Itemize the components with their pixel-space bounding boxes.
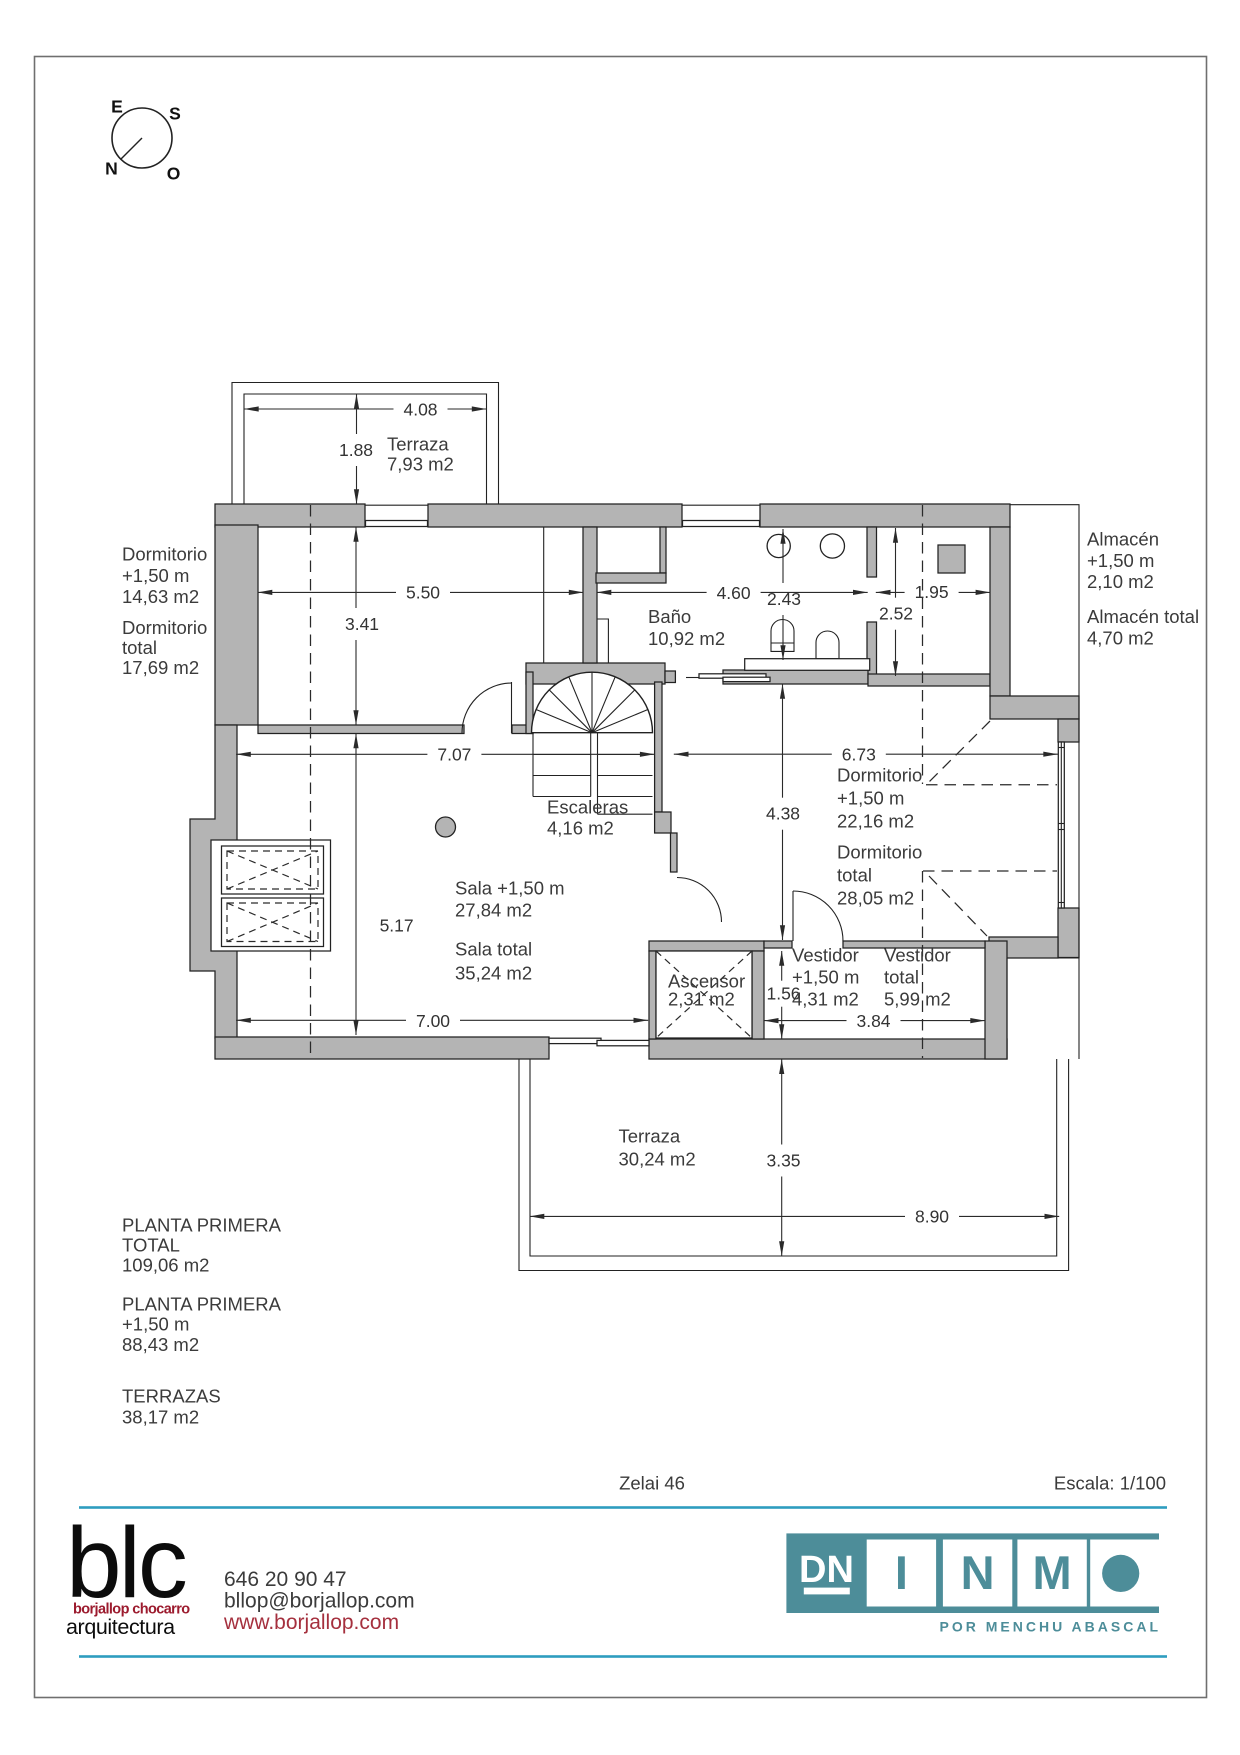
svg-text:bllop@borjallop.com: bllop@borjallop.com: [224, 1590, 415, 1613]
svg-text:1.88: 1.88: [339, 440, 373, 460]
svg-text:4,31 m2: 4,31 m2: [792, 989, 859, 1010]
svg-text:14,63 m2: 14,63 m2: [122, 586, 199, 607]
svg-text:Zelai 46: Zelai 46: [619, 1473, 685, 1494]
svg-text:5,99 m2: 5,99 m2: [884, 989, 951, 1010]
svg-text:4.38: 4.38: [766, 804, 800, 824]
svg-text:Terraza: Terraza: [619, 1126, 681, 1147]
svg-text:Sala total: Sala total: [455, 939, 532, 960]
svg-text:PLANTA PRIMERA: PLANTA PRIMERA: [122, 1294, 282, 1315]
svg-text:+1,50 m: +1,50 m: [837, 788, 904, 809]
svg-text:88,43 m2: 88,43 m2: [122, 1334, 199, 1355]
svg-text:total: total: [122, 637, 157, 658]
svg-text:TOTAL: TOTAL: [122, 1235, 180, 1256]
svg-text:6.73: 6.73: [842, 745, 876, 765]
svg-text:35,24 m2: 35,24 m2: [455, 963, 532, 984]
svg-text:Baño: Baño: [648, 606, 691, 627]
svg-text:Vestidor: Vestidor: [792, 945, 859, 966]
svg-text:I: I: [895, 1546, 908, 1599]
svg-text:646 20 90 47: 646 20 90 47: [224, 1568, 347, 1591]
svg-text:Dormitorio: Dormitorio: [122, 617, 207, 638]
svg-text:7,93 m2: 7,93 m2: [387, 454, 454, 475]
svg-text:3.41: 3.41: [345, 614, 379, 634]
svg-text:arquitectura: arquitectura: [66, 1615, 175, 1639]
svg-text:4,70 m2: 4,70 m2: [1087, 628, 1154, 649]
svg-text:2.52: 2.52: [879, 604, 913, 624]
svg-text:2.43: 2.43: [767, 589, 801, 609]
svg-text:total: total: [837, 865, 872, 886]
svg-text:Almacén total: Almacén total: [1087, 606, 1199, 627]
svg-text:Dormitorio: Dormitorio: [837, 765, 922, 786]
svg-text:1.95: 1.95: [915, 582, 949, 602]
svg-text:3.35: 3.35: [766, 1151, 800, 1171]
svg-text:7.07: 7.07: [437, 745, 471, 765]
svg-text:N: N: [961, 1546, 995, 1599]
svg-text:4.60: 4.60: [717, 583, 751, 603]
svg-text:Escaleras: Escaleras: [547, 797, 628, 818]
svg-text:M: M: [1033, 1546, 1072, 1599]
svg-text:+1,50 m: +1,50 m: [1087, 550, 1154, 571]
svg-text:Escala: 1/100: Escala: 1/100: [1054, 1473, 1166, 1494]
svg-text:4,16 m2: 4,16 m2: [547, 818, 614, 839]
svg-text:109,06 m2: 109,06 m2: [122, 1255, 209, 1276]
svg-text:5.17: 5.17: [380, 916, 414, 936]
svg-text:PLANTA PRIMERA: PLANTA PRIMERA: [122, 1215, 282, 1236]
svg-text:27,84 m2: 27,84 m2: [455, 900, 532, 921]
svg-text:TERRAZAS: TERRAZAS: [122, 1386, 221, 1407]
svg-text:Dormitorio: Dormitorio: [837, 842, 922, 863]
svg-text:Dormitorio: Dormitorio: [122, 543, 207, 564]
svg-text:www.borjallop.com: www.borjallop.com: [223, 1611, 399, 1634]
svg-text:5.50: 5.50: [406, 583, 440, 603]
svg-text:8.90: 8.90: [915, 1207, 949, 1227]
svg-text:2,31 m2: 2,31 m2: [668, 989, 735, 1010]
svg-text:POR MENCHU ABASCAL: POR MENCHU ABASCAL: [940, 1619, 1161, 1635]
svg-text:O: O: [167, 164, 181, 184]
svg-text:S: S: [169, 104, 181, 124]
svg-text:+1,50 m: +1,50 m: [792, 967, 859, 988]
svg-text:17,69 m2: 17,69 m2: [122, 657, 199, 678]
svg-text:Vestidor: Vestidor: [884, 945, 951, 966]
svg-text:E: E: [111, 97, 123, 117]
svg-text:10,92 m2: 10,92 m2: [648, 628, 725, 649]
svg-text:total: total: [884, 967, 919, 988]
svg-text:+1,50 m: +1,50 m: [122, 565, 189, 586]
svg-text:28,05 m2: 28,05 m2: [837, 888, 914, 909]
svg-text:+1,50 m: +1,50 m: [122, 1314, 189, 1335]
svg-text:22,16 m2: 22,16 m2: [837, 811, 914, 832]
svg-text:2,10 m2: 2,10 m2: [1087, 571, 1154, 592]
svg-text:Almacén: Almacén: [1087, 529, 1159, 550]
svg-text:4.08: 4.08: [403, 400, 437, 420]
svg-text:3.84: 3.84: [856, 1011, 890, 1031]
svg-text:DN: DN: [799, 1549, 854, 1591]
svg-text:N: N: [105, 159, 118, 179]
svg-text:Sala +1,50 m: Sala +1,50 m: [455, 878, 565, 899]
svg-text:7.00: 7.00: [416, 1011, 450, 1031]
svg-text:30,24 m2: 30,24 m2: [619, 1149, 696, 1170]
svg-text:38,17 m2: 38,17 m2: [122, 1407, 199, 1428]
svg-text:Terraza: Terraza: [387, 434, 449, 455]
